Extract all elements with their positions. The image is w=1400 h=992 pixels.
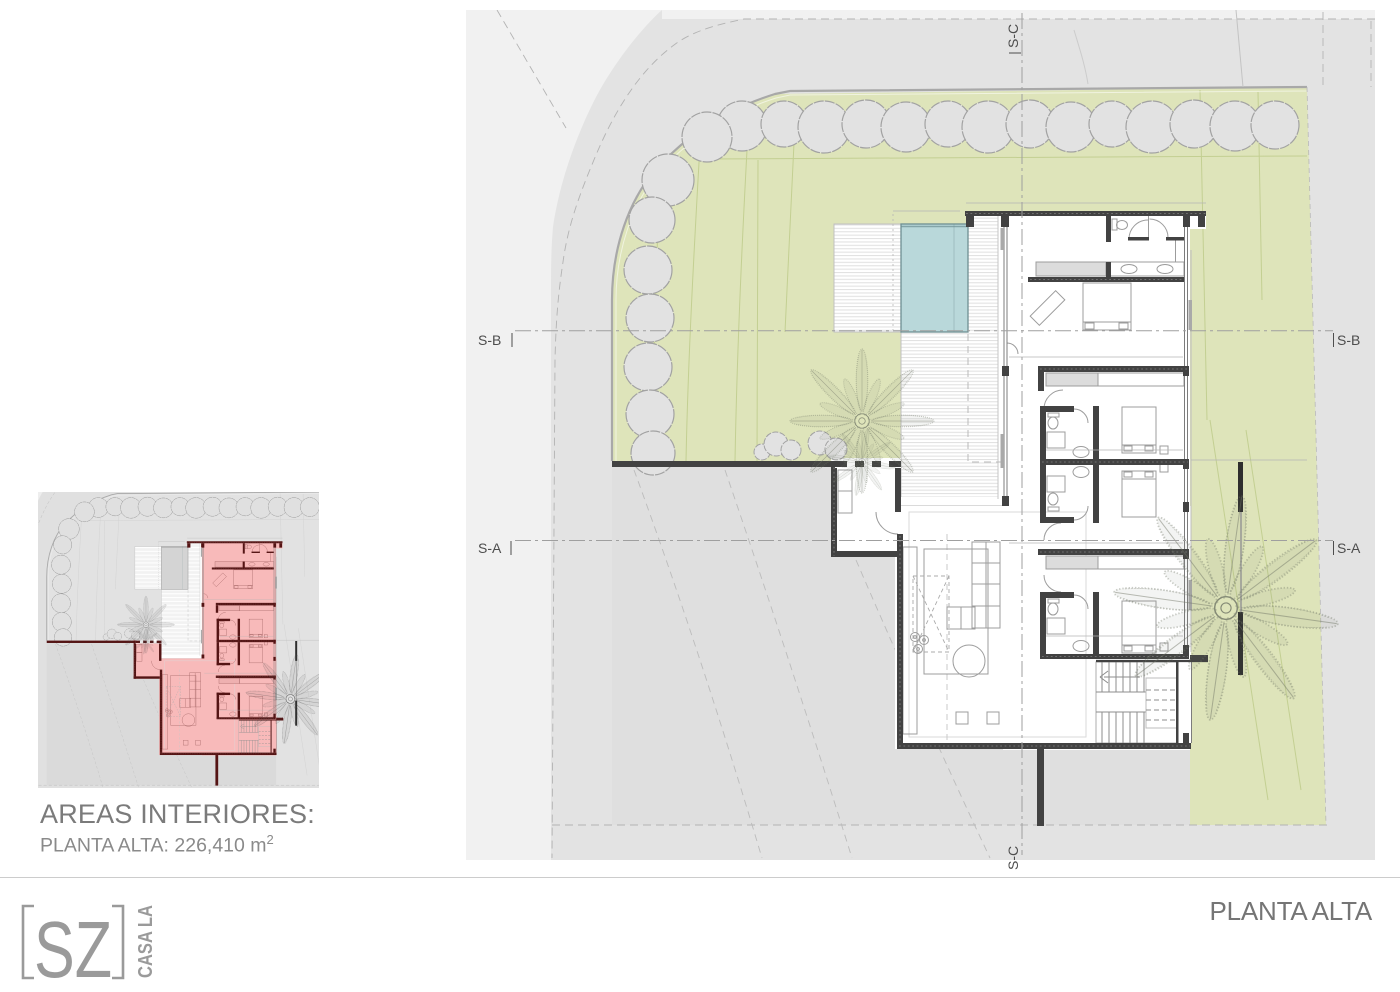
svg-text:S-A: S-A <box>1337 540 1361 556</box>
svg-text:SZ: SZ <box>34 905 112 988</box>
svg-text:CASA LA: CASA LA <box>135 905 157 978</box>
svg-text:S-C: S-C <box>1005 24 1021 48</box>
svg-text:S-B: S-B <box>1337 332 1360 348</box>
svg-text:S-B: S-B <box>478 332 501 348</box>
svg-text:S-C: S-C <box>1005 846 1021 870</box>
svg-text:S-A: S-A <box>478 540 502 556</box>
